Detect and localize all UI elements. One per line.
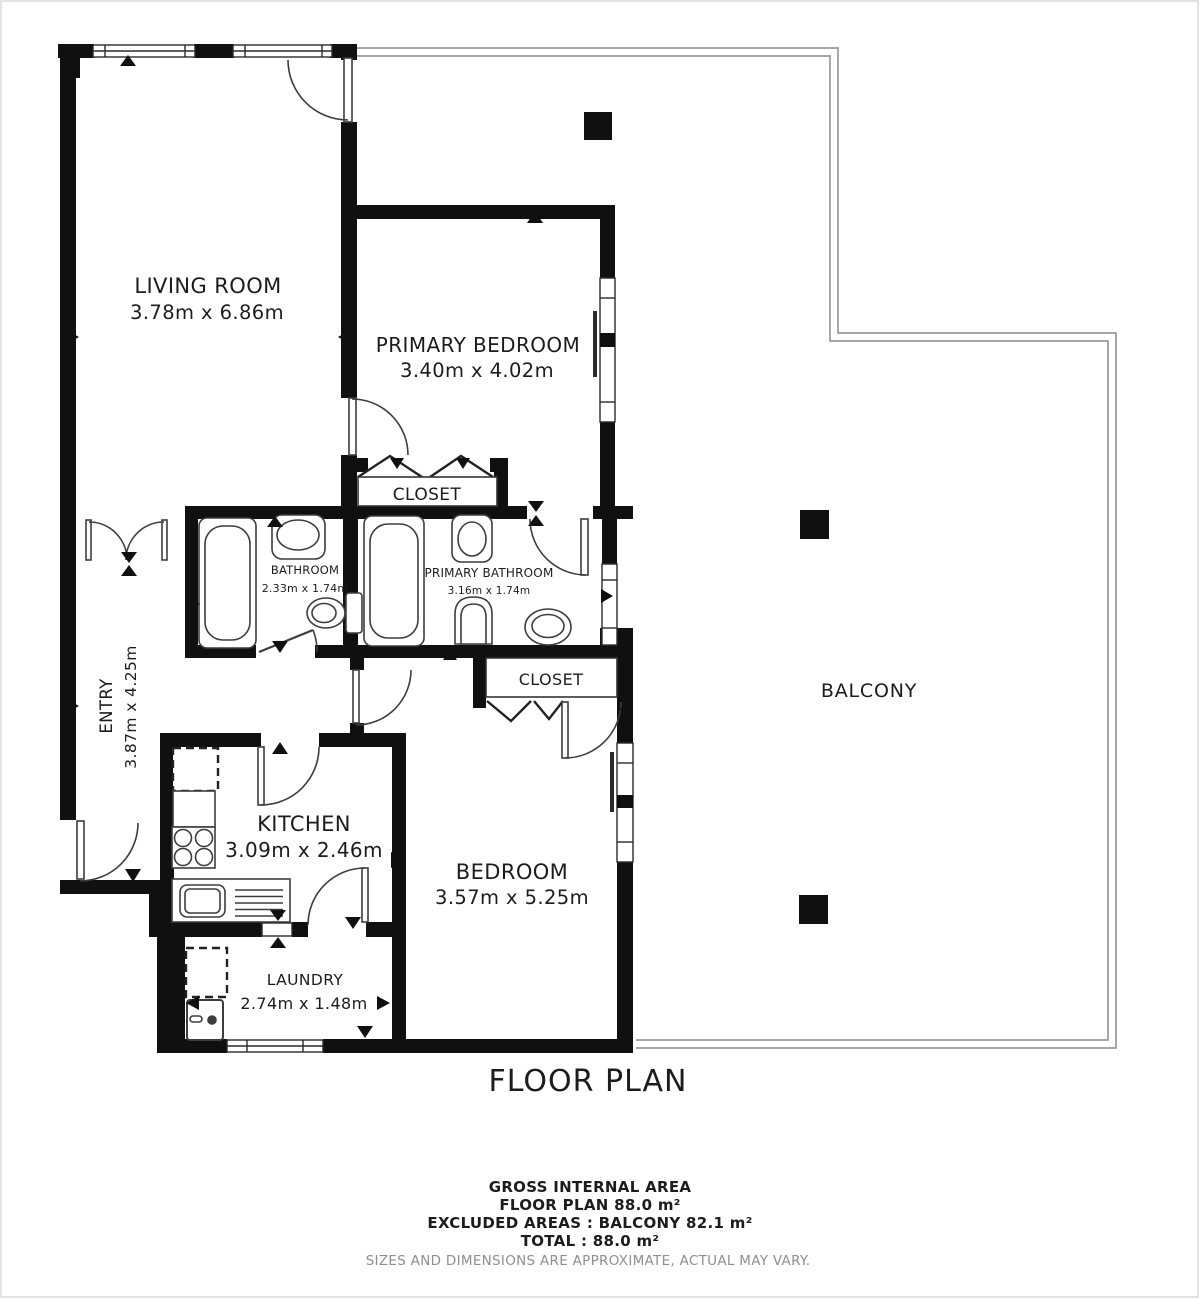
marker-triangle bbox=[528, 501, 544, 512]
window bbox=[602, 564, 617, 645]
sink bbox=[272, 515, 325, 559]
door-kitchen-south bbox=[308, 868, 368, 925]
kitchen-counter bbox=[173, 791, 215, 827]
laundry-dims: 2.74m x 1.48m bbox=[240, 994, 367, 1013]
marker-triangle bbox=[121, 565, 137, 576]
kitchen-sink bbox=[172, 879, 290, 922]
window bbox=[593, 278, 615, 422]
footer-line-1: GROSS INTERNAL AREA bbox=[489, 1178, 692, 1196]
living-room-label: LIVING ROOM bbox=[134, 274, 281, 298]
window bbox=[93, 45, 195, 57]
footer: GROSS INTERNAL AREA FLOOR PLAN 88.0 m² E… bbox=[366, 1178, 811, 1269]
toilet bbox=[307, 593, 362, 633]
door-kitchen-north bbox=[258, 747, 319, 805]
page-title: FLOOR PLAN bbox=[489, 1064, 688, 1099]
column bbox=[799, 895, 828, 924]
toilet bbox=[525, 609, 571, 645]
stove bbox=[172, 827, 215, 868]
door-bathroom bbox=[259, 630, 317, 652]
footer-line-3: EXCLUDED AREAS : BALCONY 82.1 m² bbox=[427, 1214, 752, 1232]
laundry-label: LAUNDRY bbox=[267, 971, 344, 989]
primary-closet-label: CLOSET bbox=[393, 485, 462, 505]
window bbox=[262, 923, 292, 936]
labels: LIVING ROOM 3.78m x 6.86m PRIMARY BEDROO… bbox=[97, 274, 917, 1269]
bathtub bbox=[199, 518, 256, 648]
refrigerator bbox=[173, 748, 218, 791]
column bbox=[584, 112, 612, 140]
sink bbox=[452, 515, 492, 562]
footer-line-2: FLOOR PLAN 88.0 m² bbox=[499, 1196, 680, 1214]
primary-bedroom-dims: 3.40m x 4.02m bbox=[400, 359, 554, 382]
primary-bathroom-label: PRIMARY BATHROOM bbox=[424, 566, 553, 580]
footer-line-4: TOTAL : 88.0 m² bbox=[521, 1232, 660, 1250]
marker-triangle bbox=[377, 996, 390, 1010]
pedestal-sink bbox=[455, 597, 492, 644]
entry-label: ENTRY bbox=[97, 678, 116, 734]
window bbox=[227, 1040, 323, 1052]
door-hall bbox=[353, 670, 411, 725]
bedroom-dims: 3.57m x 5.25m bbox=[435, 886, 589, 909]
bedroom-label: BEDROOM bbox=[456, 860, 568, 884]
primary-bedroom-label: PRIMARY BEDROOM bbox=[376, 333, 580, 357]
footer-disclaimer: SIZES AND DIMENSIONS ARE APPROXIMATE, AC… bbox=[366, 1253, 811, 1269]
balcony-label: BALCONY bbox=[821, 680, 917, 702]
floor-plan-drawing: LIVING ROOM 3.78m x 6.86m PRIMARY BEDROO… bbox=[0, 0, 1200, 1299]
dryer-space bbox=[186, 948, 227, 997]
kitchen-label: KITCHEN bbox=[257, 812, 351, 836]
marker-triangle bbox=[357, 1026, 373, 1038]
bathroom-dims: 2.33m x 1.74m bbox=[262, 582, 349, 595]
living-room-dims: 3.78m x 6.86m bbox=[130, 301, 284, 324]
door-bifold-bedroom-closet bbox=[487, 701, 563, 721]
door-primary-bedroom bbox=[349, 398, 408, 455]
kitchen-dims: 3.09m x 2.46m bbox=[225, 838, 383, 862]
door-living-balcony bbox=[288, 58, 352, 122]
door-bedroom bbox=[562, 702, 621, 758]
marker-triangle bbox=[272, 641, 288, 653]
window bbox=[610, 743, 633, 862]
marker-triangle bbox=[345, 917, 361, 929]
marker-triangle bbox=[121, 552, 137, 563]
window bbox=[233, 45, 332, 57]
bathtub bbox=[364, 516, 424, 646]
marker-triangle bbox=[272, 742, 288, 754]
primary-bathroom-dims: 3.16m x 1.74m bbox=[448, 585, 531, 597]
door-bifold-primary-closet bbox=[358, 456, 493, 477]
bathroom-label: BATHROOM bbox=[271, 563, 339, 577]
column bbox=[800, 510, 829, 539]
floor-plan-page: LIVING ROOM 3.78m x 6.86m PRIMARY BEDROO… bbox=[0, 0, 1200, 1299]
bedroom-closet-label: CLOSET bbox=[519, 670, 584, 689]
marker-triangle bbox=[456, 458, 470, 469]
marker-triangle bbox=[270, 937, 286, 948]
entry-dims: 3.87m x 4.25m bbox=[122, 645, 140, 768]
